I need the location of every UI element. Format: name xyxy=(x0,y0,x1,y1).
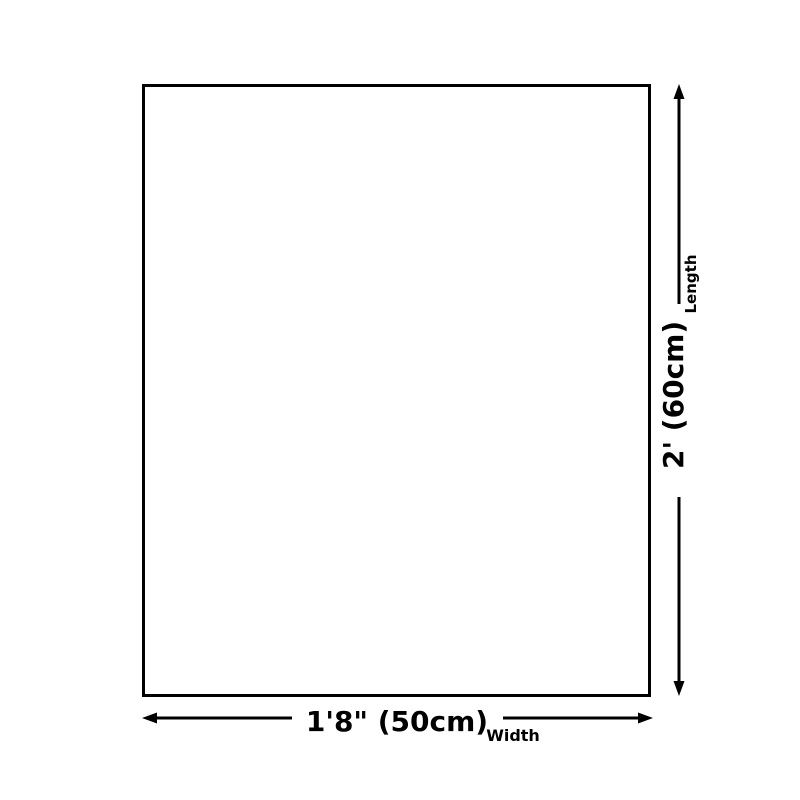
length-dimension-label: Length xyxy=(683,254,699,314)
width-arrow-left-icon xyxy=(142,710,292,726)
dimension-diagram: Length 2' (60cm) 1'8" (50cm) Width xyxy=(0,0,800,800)
width-dimension-label: Width xyxy=(463,727,563,745)
width-arrow-right-icon xyxy=(503,710,653,726)
product-outline-rect xyxy=(142,84,651,697)
length-arrow-down-icon xyxy=(671,497,687,696)
length-dimension-value: 2' (60cm) xyxy=(659,329,689,469)
